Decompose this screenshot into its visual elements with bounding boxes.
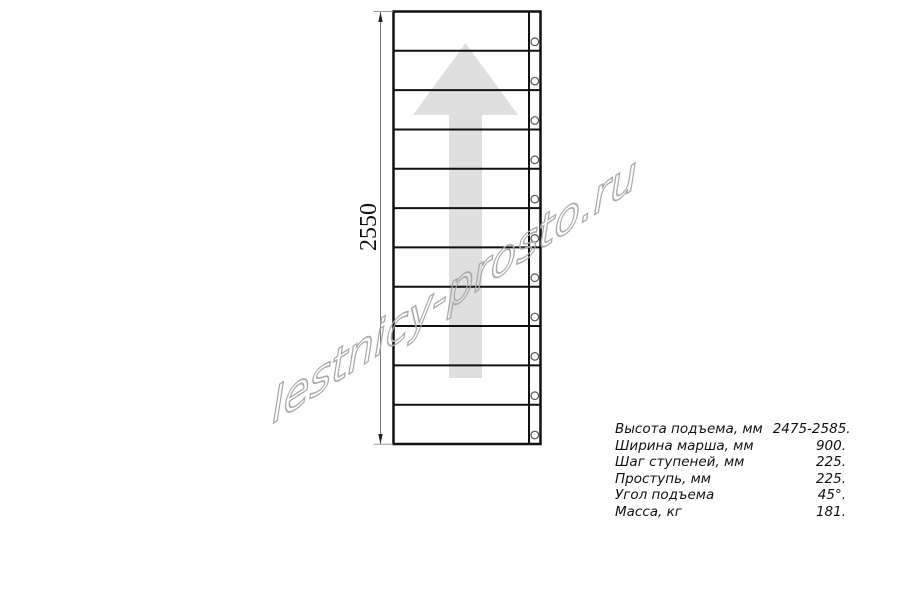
- specs-table: Высота подъема, мм 2475-2585. Ширина мар…: [615, 421, 846, 520]
- spec-value: 900.: [816, 438, 846, 455]
- spec-value: 181.: [816, 504, 846, 521]
- spec-label: Ширина марша, мм: [615, 438, 754, 455]
- spec-label: Высота подъема, мм: [615, 421, 763, 438]
- dimension-arrowhead-bottom: [378, 434, 382, 444]
- spec-row: Проступь, мм 225.: [615, 471, 846, 488]
- stringer-bolt-circle: [531, 392, 539, 400]
- spec-row: Угол подъема 45°.: [615, 487, 846, 504]
- stringer-bolt-circle: [531, 77, 539, 85]
- stringer-bolt-circle: [531, 156, 539, 164]
- stringer-bolt-circle: [531, 353, 539, 361]
- spec-value: 45°.: [818, 487, 846, 504]
- stringer-bolt-circle: [531, 117, 539, 125]
- dimension-label: 2550: [356, 203, 382, 251]
- spec-label: Масса, кг: [615, 504, 682, 521]
- stringer-bolt-circle: [531, 38, 539, 46]
- spec-row: Шаг ступеней, мм 225.: [615, 454, 846, 471]
- spec-label: Угол подъема: [615, 487, 714, 504]
- page: 2550 lestnicy-prosto.ru Высота подъема, …: [0, 0, 900, 600]
- spec-value: 225.: [816, 471, 846, 488]
- spec-value: 2475-2585.: [773, 421, 851, 438]
- spec-row: Масса, кг 181.: [615, 504, 846, 521]
- spec-label: Проступь, мм: [615, 471, 711, 488]
- spec-row: Ширина марша, мм 900.: [615, 438, 846, 455]
- stringer-bolt-circle: [531, 195, 539, 203]
- dimension-arrowhead-top: [378, 12, 382, 22]
- stringer-bolt-circle: [531, 431, 539, 439]
- spec-row: Высота подъема, мм 2475-2585.: [615, 421, 846, 438]
- spec-label: Шаг ступеней, мм: [615, 454, 744, 471]
- stringer-bolt-circle: [531, 313, 539, 321]
- dimension-2550: 2550: [356, 12, 393, 445]
- stringer-bolt-circle: [531, 274, 539, 282]
- spec-value: 225.: [816, 454, 846, 471]
